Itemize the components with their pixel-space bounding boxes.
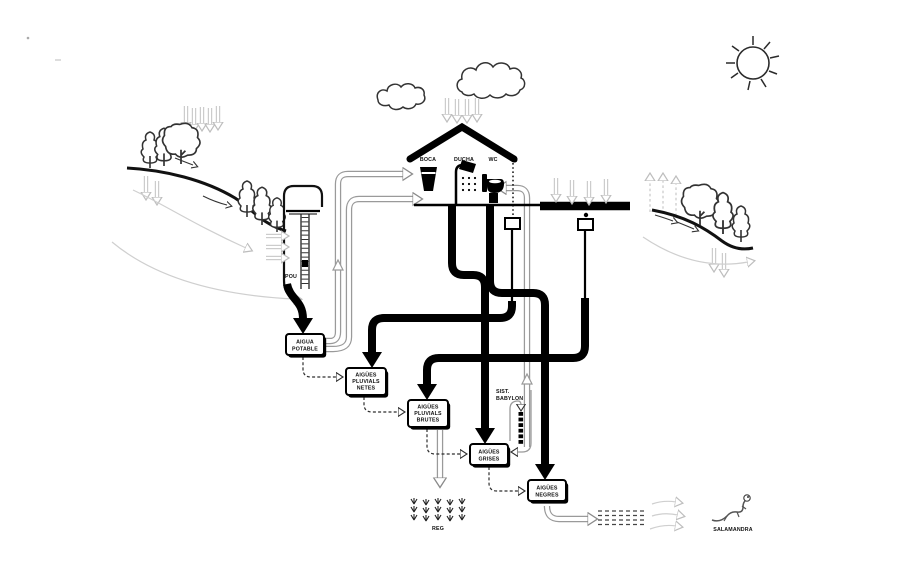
right-landscape: [643, 180, 753, 270]
infiltration-field: [598, 501, 678, 529]
well-inflow-arrows: [266, 236, 282, 258]
well-shaft: [301, 214, 309, 289]
slope-flow-arrow: [203, 196, 227, 205]
sun-icon: [726, 36, 779, 90]
toilet-icon: [482, 174, 504, 203]
tank-aigues-pluvials-brutes: AIGÜES PLUVIALS BRUTES: [408, 400, 450, 430]
tree-icon: [253, 187, 271, 225]
terrace-to-brutes-pipe: [427, 298, 585, 385]
groundwater-flow-line: [112, 242, 295, 299]
house: BOCA DUCHA WC: [410, 127, 540, 205]
babylon-label-line2: BABYLON: [496, 396, 523, 402]
slope-flow-arrow: [655, 215, 673, 221]
tank-label: POTABLE: [292, 347, 318, 353]
cloud-small-icon: [377, 84, 425, 110]
shower-icon: [456, 160, 476, 205]
slope-flow-arrow: [175, 158, 193, 165]
roof-to-netes-pipe: [372, 301, 512, 353]
tank-label: NETES: [357, 386, 376, 392]
tank-label: AIGÜES: [478, 449, 500, 456]
rain-arrows-terrace: [556, 178, 606, 198]
tree-icon: [732, 206, 750, 242]
tank-label: BRUTES: [417, 418, 440, 424]
brutes-to-grises-connector: [427, 429, 461, 454]
wc-to-negres-pipe: [490, 206, 545, 465]
tank-aigues-pluvials-netes: AIGÜES PLUVIALS NETES: [346, 368, 388, 398]
groundwater-flow-line: [133, 190, 246, 248]
tank-label: AIGUA: [296, 340, 314, 346]
water-cycle-diagram: POU BOCA DUCHA WC: [0, 0, 900, 566]
tap-label: BOCA: [420, 157, 436, 163]
tank-label: GRISES: [479, 457, 500, 463]
up-chevron-icon: [522, 374, 532, 384]
pitched-roof-icon: [410, 127, 514, 159]
infiltration-dashes-icon: [598, 511, 644, 525]
rain-arrows-over-house: [447, 98, 477, 116]
tank-aigues-negres: AIGÜES NEGRES: [528, 480, 568, 504]
collector-box-icon: [578, 219, 593, 230]
wc-label: WC: [488, 157, 497, 163]
speck-dot: [27, 37, 30, 40]
salamander-label: SALAMANDRA: [713, 527, 752, 533]
outflow-wave-arrow: [650, 525, 676, 529]
cup-icon: [420, 167, 437, 191]
irrigation-plants-icon: [411, 498, 465, 521]
tank-label: AIGÜES: [417, 404, 439, 411]
groundwater-flow-line: [643, 237, 748, 264]
outflow-wave-arrow: [652, 501, 676, 504]
flat-roof-terrace: [540, 178, 630, 206]
tank-label: PLUVIALS: [352, 379, 380, 385]
infiltration-arrows-left: [146, 176, 157, 198]
well-pump: [302, 260, 308, 267]
cloud-big-icon: [457, 63, 525, 99]
negres-outflow-pipe: [547, 506, 588, 519]
babylon-label-line1: SIST.: [496, 389, 510, 395]
potable-to-netes-connector: [303, 357, 337, 377]
up-chevron-icon: [333, 260, 343, 270]
collector-box-icon: [505, 218, 520, 229]
tank-label: AIGÜES: [355, 372, 377, 379]
left-landscape: [112, 106, 295, 299]
babylon-drip-column: [519, 412, 524, 444]
well-label: POU: [285, 274, 297, 280]
tank-aigua-potable: AIGUA POTABLE: [286, 334, 326, 358]
infiltration-arrows-right: [714, 248, 724, 270]
tank-label: AIGÜES: [536, 485, 558, 492]
tank-aigues-grises: AIGÜES GRISES: [470, 444, 510, 468]
netes-to-brutes-connector: [364, 397, 399, 412]
corner-specks: [27, 37, 61, 60]
roof-collectors: [505, 163, 593, 303]
irrigation-reg: REG: [411, 498, 465, 532]
rain-arrows-left: [186, 106, 218, 125]
outflow-wave-arrow: [652, 514, 678, 516]
diagram-canvas: POU BOCA DUCHA WC: [0, 0, 900, 566]
tank-label: NEGRES: [535, 493, 559, 499]
tree-icon: [269, 198, 286, 232]
salamander-icon: [712, 495, 750, 521]
tank-label: PLUVIALS: [414, 411, 442, 417]
well-to-potable-pipe: [287, 284, 303, 319]
grises-to-negres-connector: [489, 467, 519, 491]
salamander: SALAMANDRA: [712, 495, 753, 533]
irrigation-label: REG: [432, 526, 444, 532]
